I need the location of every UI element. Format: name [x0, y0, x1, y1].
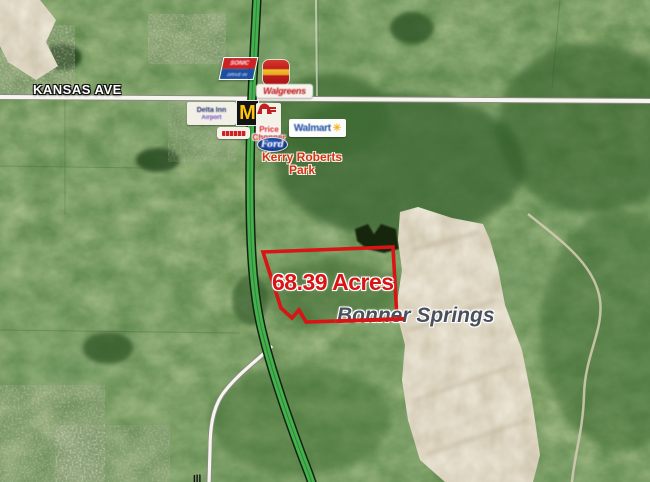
walmart-spark-icon: ✳	[333, 123, 341, 134]
hotel-sign: Delta Inn Airport	[187, 102, 236, 125]
sonic-tagline: DRIVE-IN	[220, 69, 255, 79]
walmart-name: Walmart	[294, 123, 331, 134]
walmart-sign: Walmart ✳	[289, 119, 346, 137]
park-label-line2: Park	[250, 164, 354, 177]
hotel-subtitle: Airport	[202, 115, 222, 121]
clipped-road-label: Ill	[193, 475, 201, 482]
ford-name: Ford	[261, 140, 284, 150]
parcel-acreage-label: 68.39 Acres	[272, 271, 394, 294]
kerry-roberts-park-label: Kerry Roberts Park	[250, 151, 354, 176]
walgreens-sign: Walgreens	[256, 84, 313, 98]
illegible-red-text	[222, 131, 246, 136]
kansas-ave-road	[0, 97, 650, 101]
pizza-hut-roof-icon	[256, 103, 273, 115]
mcdonalds-arches-icon: M	[239, 102, 256, 125]
park-label-line1: Kerry Roberts	[250, 151, 354, 164]
sonic-sign: SONIC DRIVE-IN	[219, 57, 259, 80]
city-label-bonner-springs: Bonner Springs	[337, 305, 495, 326]
minor-road	[316, 0, 317, 96]
small-business-sign	[217, 127, 250, 139]
sonic-name: SONIC	[222, 58, 257, 69]
map-canvas	[0, 0, 650, 482]
hotel-name: Delta Inn	[197, 107, 227, 114]
kansas-ave-label: KANSAS AVE	[33, 83, 122, 96]
burger-king-logo	[263, 60, 289, 85]
walgreens-name: Walgreens	[263, 86, 306, 96]
aerial-map: KANSAS AVE 7 SONIC DRIVE-IN Walgreens De…	[0, 0, 650, 482]
